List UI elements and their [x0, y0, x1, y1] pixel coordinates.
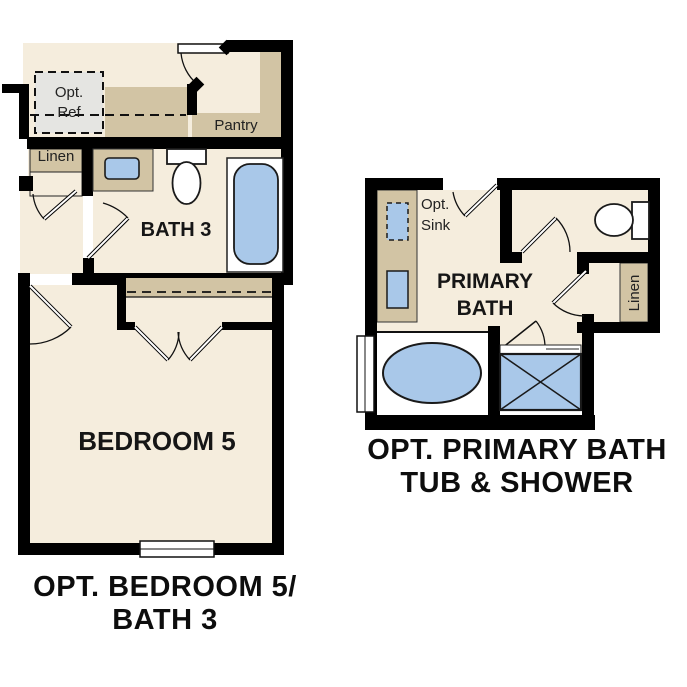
- pantry-label: Pantry: [190, 116, 282, 136]
- opt-sink-label: Opt. Sink: [421, 194, 481, 236]
- pantry-shelf-right: [260, 50, 282, 113]
- bathtub-icon: [227, 158, 283, 272]
- right-plan-caption: OPT. PRIMARY BATH TUB & SHOWER: [351, 434, 683, 500]
- bath3-vanity: [93, 149, 153, 191]
- toilet-icon: [595, 202, 649, 239]
- opt-ref-label: Opt. Ref: [35, 83, 103, 123]
- bedroom5-label: BEDROOM 5: [47, 426, 267, 457]
- sink-icon: [387, 271, 408, 308]
- shower-icon: [500, 345, 581, 410]
- window-icon: [140, 541, 214, 557]
- sink-icon: [105, 158, 139, 179]
- kitchen-counter: [105, 87, 188, 137]
- window-icon: [357, 336, 374, 412]
- left-plan-caption: OPT. BEDROOM 5/ BATH 3: [5, 571, 325, 637]
- bath3-label: BATH 3: [110, 219, 242, 242]
- floorplan-page: Opt. Ref Linen Pantry BATH 3 BEDROOM 5 O…: [0, 0, 687, 687]
- oval-bathtub-icon: [383, 343, 481, 403]
- linen-label-right: Linen: [625, 270, 643, 316]
- closet-shelf: [120, 278, 283, 297]
- optional-sink-icon: [387, 203, 408, 240]
- linen-label-left: Linen: [30, 147, 82, 167]
- primary-bath-label: PRIMARY BATH: [409, 268, 561, 322]
